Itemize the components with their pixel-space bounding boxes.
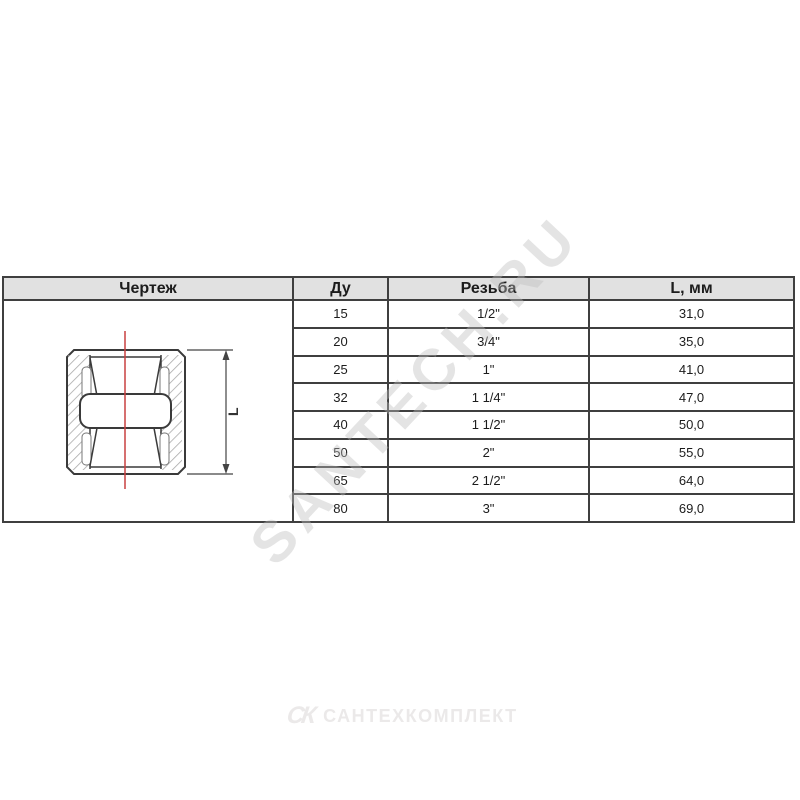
cell-thread: 1 1/4" — [388, 383, 589, 411]
cell-length: 69,0 — [589, 494, 794, 522]
col-header-length: L, мм — [589, 277, 794, 300]
cell-thread: 2" — [388, 439, 589, 467]
cell-thread: 1" — [388, 356, 589, 384]
santehkomplekt-logo-icon: СК — [285, 702, 315, 730]
cell-length: 47,0 — [589, 383, 794, 411]
cell-dn: 32 — [293, 383, 388, 411]
cell-length: 50,0 — [589, 411, 794, 439]
cell-length: 64,0 — [589, 467, 794, 495]
cell-dn: 15 — [293, 300, 388, 328]
cell-dn: 25 — [293, 356, 388, 384]
table-row: L 15 1/2" 31,0 — [3, 300, 794, 328]
cell-length: 41,0 — [589, 356, 794, 384]
cell-dn: 50 — [293, 439, 388, 467]
technical-drawing-cell: L — [3, 300, 293, 522]
coupling-spec-table: Чертеж Ду Резьба L, мм — [2, 276, 795, 523]
dimension-label: L — [225, 407, 241, 416]
catalog-page: SANTECH.RU Чертеж Ду Резьба L, мм — [0, 0, 800, 800]
cell-length: 55,0 — [589, 439, 794, 467]
cell-dn: 20 — [293, 328, 388, 356]
cell-thread: 1/2" — [388, 300, 589, 328]
cell-thread: 3" — [388, 494, 589, 522]
cell-length: 35,0 — [589, 328, 794, 356]
col-header-dn: Ду — [293, 277, 388, 300]
footer-logo-text: САНТЕХКОМПЛЕКТ — [323, 706, 518, 727]
cell-thread: 3/4" — [388, 328, 589, 356]
cell-dn: 40 — [293, 411, 388, 439]
coupling-technical-drawing-icon: L — [4, 301, 290, 521]
cell-dn: 80 — [293, 494, 388, 522]
header-row: Чертеж Ду Резьба L, мм — [3, 277, 794, 300]
col-header-thread: Резьба — [388, 277, 589, 300]
cell-length: 31,0 — [589, 300, 794, 328]
cell-thread: 1 1/2" — [388, 411, 589, 439]
col-header-drawing: Чертеж — [3, 277, 293, 300]
cell-thread: 2 1/2" — [388, 467, 589, 495]
cell-dn: 65 — [293, 467, 388, 495]
footer-logo: СК САНТЕХКОМПЛЕКТ — [287, 702, 518, 730]
table-header: Чертеж Ду Резьба L, мм — [3, 277, 794, 300]
